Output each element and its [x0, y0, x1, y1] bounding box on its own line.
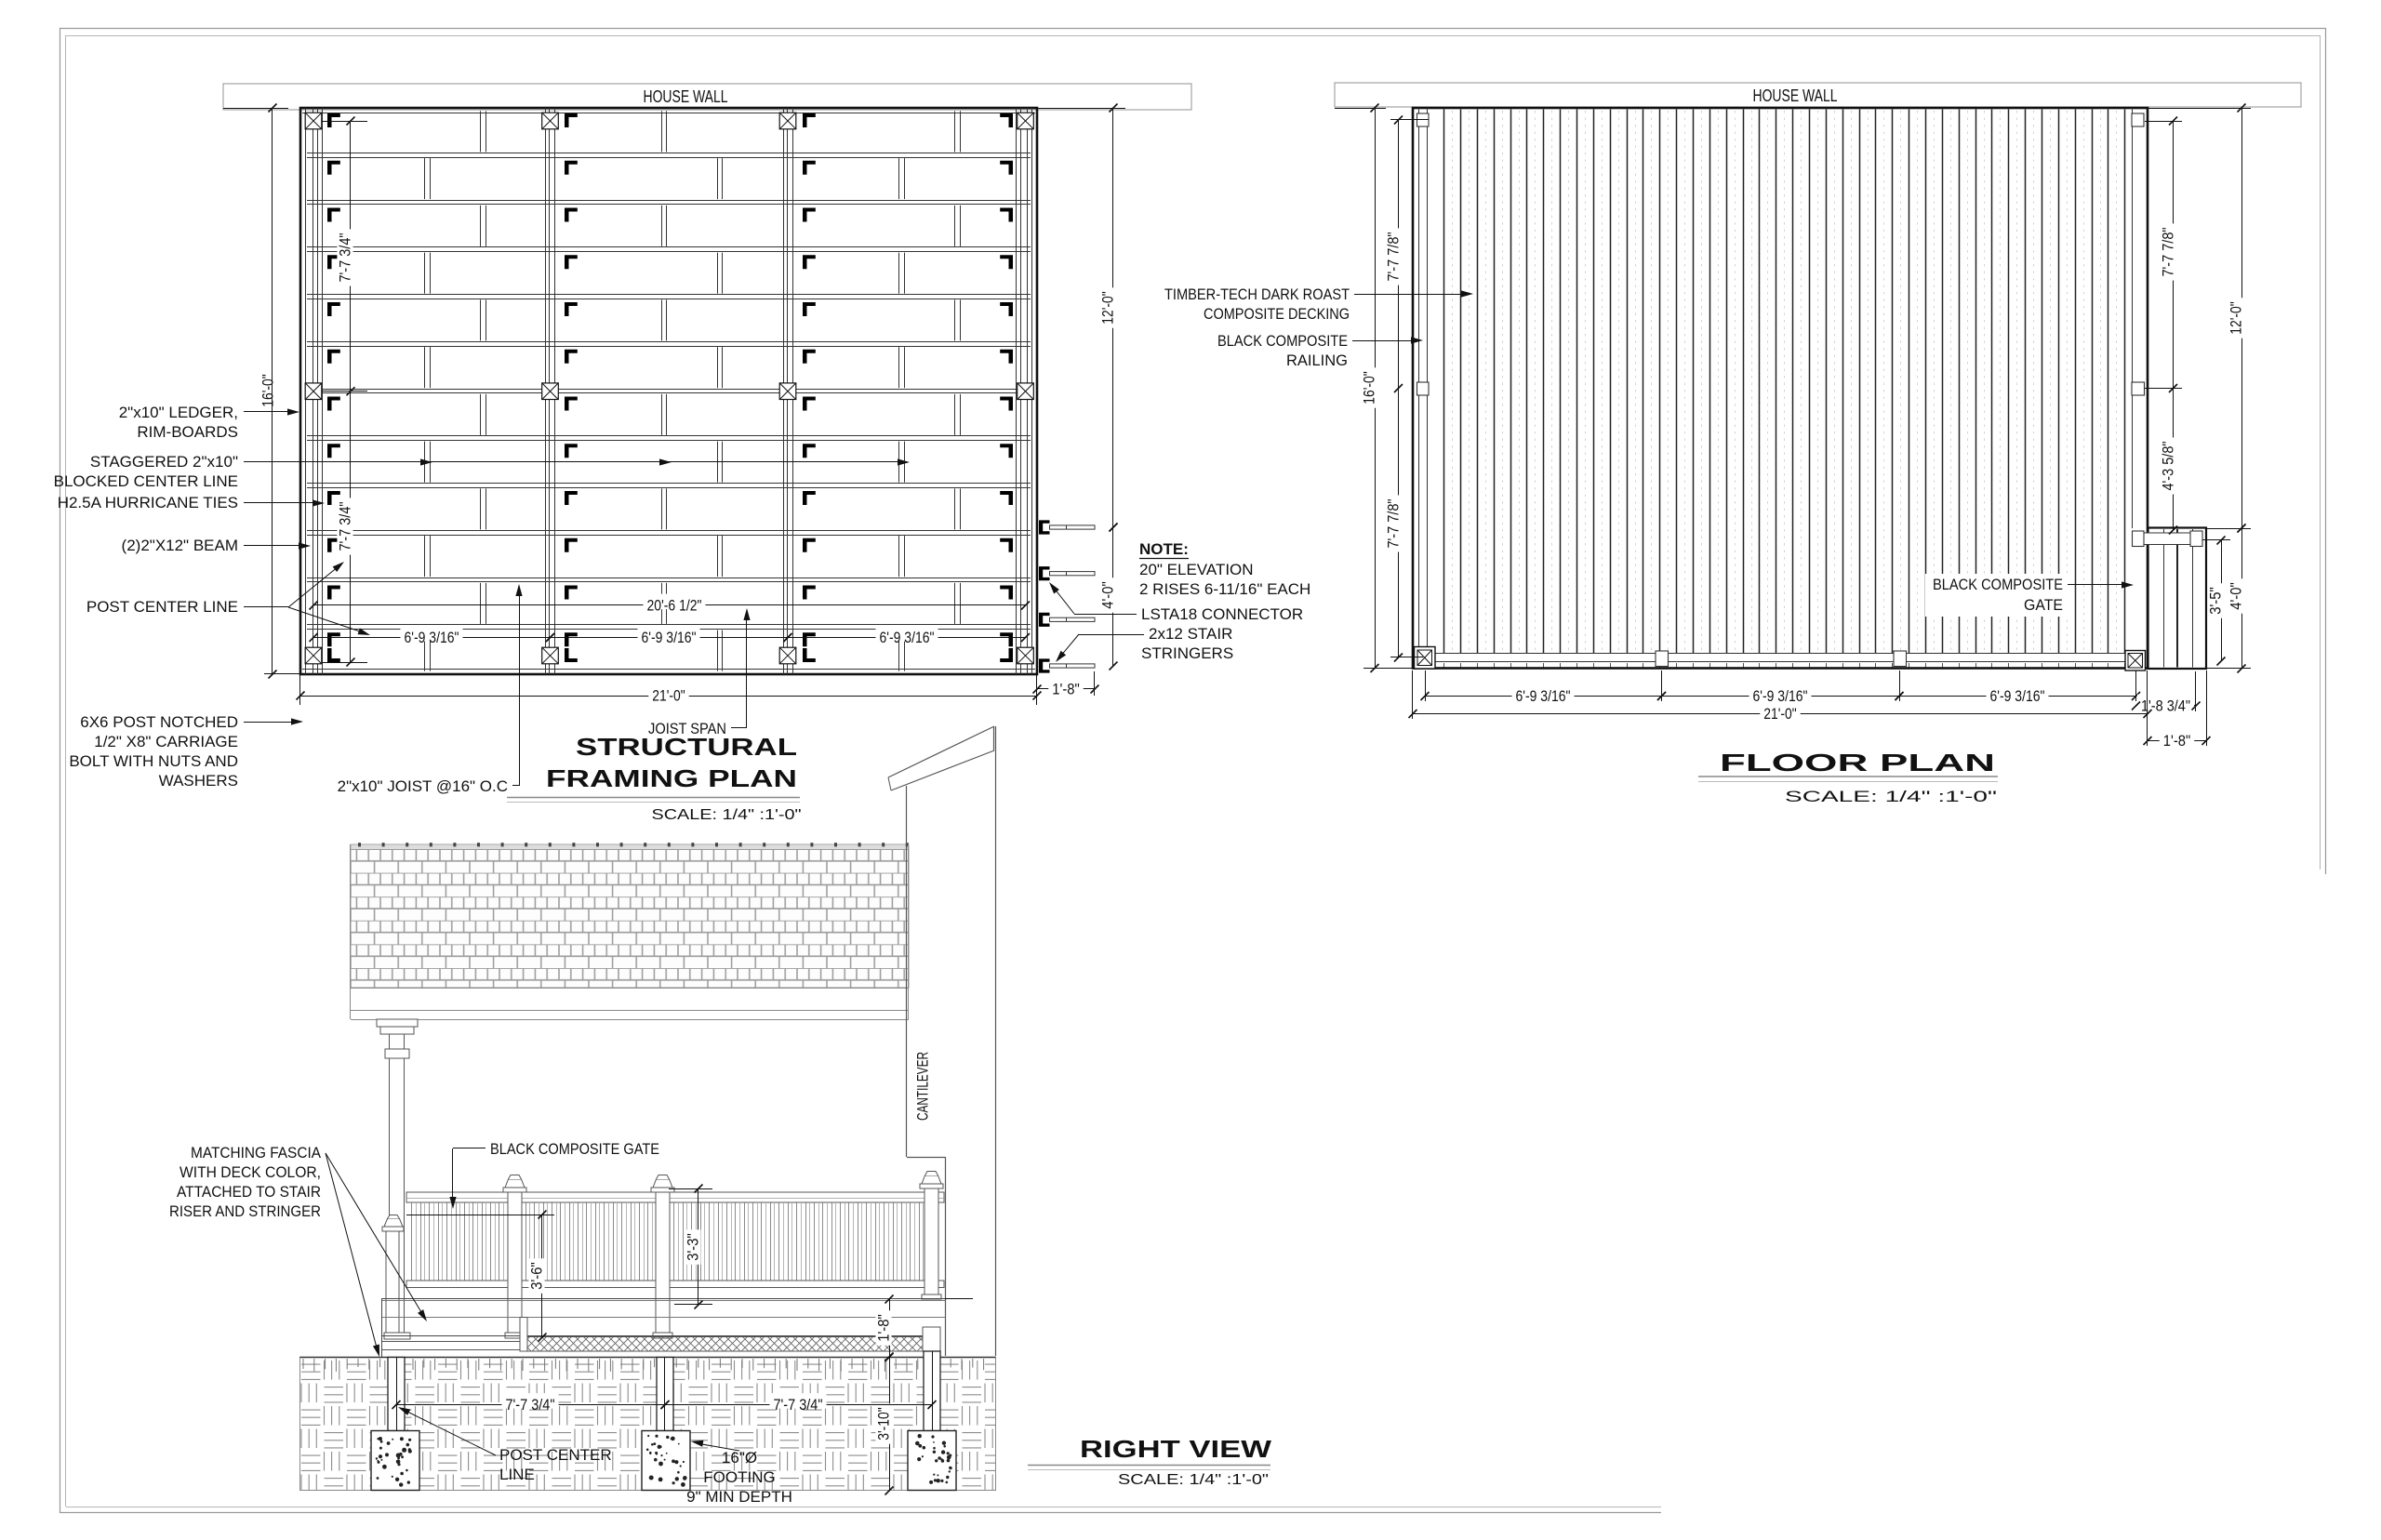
- svg-text:RIGHT VIEW: RIGHT VIEW: [1080, 1435, 1272, 1463]
- svg-text:RIM-BOARDS: RIM-BOARDS: [137, 423, 238, 441]
- svg-text:BLOCKED CENTER LINE: BLOCKED CENTER LINE: [54, 472, 238, 490]
- svg-text:ATTACHED TO STAIR: ATTACHED TO STAIR: [177, 1183, 321, 1201]
- svg-text:SCALE: 1/4" :1'-0": SCALE: 1/4" :1'-0": [652, 807, 802, 823]
- svg-text:FOOTING: FOOTING: [703, 1468, 775, 1486]
- svg-text:LSTA18 CONNECTOR: LSTA18 CONNECTOR: [1141, 605, 1303, 623]
- svg-text:BLACK COMPOSITE: BLACK COMPOSITE: [1933, 576, 2063, 593]
- svg-text:COMPOSITE DECKING: COMPOSITE DECKING: [1204, 305, 1350, 323]
- svg-text:H2.5A HURRICANE TIES: H2.5A HURRICANE TIES: [58, 494, 238, 511]
- svg-text:1'-8": 1'-8": [1052, 681, 1080, 697]
- svg-text:16'-0": 16'-0": [1361, 371, 1377, 405]
- svg-text:3'-10": 3'-10": [875, 1407, 892, 1440]
- svg-text:STAGGERED 2"x10": STAGGERED 2"x10": [90, 453, 238, 471]
- svg-text:SCALE: 1/4" :1'-0": SCALE: 1/4" :1'-0": [1785, 789, 1997, 805]
- svg-text:7'-7 3/4": 7'-7 3/4": [773, 1397, 822, 1414]
- svg-text:20" ELEVATION: 20" ELEVATION: [1139, 561, 1254, 578]
- svg-text:6'-9 3/16": 6'-9 3/16": [405, 630, 459, 646]
- svg-text:POST CENTER: POST CENTER: [499, 1446, 612, 1464]
- svg-text:HOUSE WALL: HOUSE WALL: [644, 87, 728, 106]
- svg-text:BOLT WITH NUTS AND: BOLT WITH NUTS AND: [69, 752, 238, 770]
- svg-text:21'-0": 21'-0": [652, 687, 685, 704]
- svg-text:7'-7 3/4": 7'-7 3/4": [505, 1397, 554, 1414]
- svg-text:2x12 STAIR: 2x12 STAIR: [1149, 625, 1232, 643]
- svg-text:7'-7 7/8": 7'-7 7/8": [1385, 232, 1402, 281]
- svg-text:1/2" X8" CARRIAGE: 1/2" X8" CARRIAGE: [94, 733, 238, 750]
- svg-text:MATCHING FASCIA: MATCHING FASCIA: [191, 1144, 322, 1162]
- svg-text:3'-3": 3'-3": [685, 1233, 701, 1261]
- svg-text:2"x10" LEDGER,: 2"x10" LEDGER,: [119, 404, 238, 421]
- svg-text:1'-8": 1'-8": [875, 1314, 892, 1342]
- svg-text:16"Ø: 16"Ø: [722, 1449, 757, 1467]
- svg-text:7'-7 3/4": 7'-7 3/4": [337, 501, 353, 551]
- svg-text:NOTE:: NOTE:: [1139, 540, 1189, 558]
- svg-text:POST CENTER LINE: POST CENTER LINE: [86, 598, 238, 616]
- svg-text:2"x10" JOIST @16" O.C: 2"x10" JOIST @16" O.C: [338, 777, 508, 795]
- svg-text:2 RISES 6-11/16" EACH: 2 RISES 6-11/16" EACH: [1139, 580, 1310, 598]
- svg-text:(2)2"X12" BEAM: (2)2"X12" BEAM: [122, 537, 238, 554]
- svg-text:SCALE: 1/4" :1'-0": SCALE: 1/4" :1'-0": [1118, 1472, 1269, 1488]
- svg-text:BLACK COMPOSITE: BLACK COMPOSITE: [1217, 332, 1348, 350]
- svg-text:4'-0": 4'-0": [2228, 582, 2244, 610]
- svg-text:4'-0": 4'-0": [1099, 581, 1116, 609]
- svg-text:9" MIN DEPTH: 9" MIN DEPTH: [686, 1488, 792, 1506]
- svg-text:20'-6 1/2": 20'-6 1/2": [647, 597, 702, 614]
- svg-text:3'-6": 3'-6": [528, 1262, 545, 1290]
- svg-text:WITH DECK COLOR,: WITH DECK COLOR,: [180, 1163, 321, 1181]
- svg-text:LINE: LINE: [499, 1466, 535, 1483]
- svg-text:TIMBER-TECH DARK ROAST: TIMBER-TECH DARK ROAST: [1164, 285, 1350, 303]
- svg-text:7'-7 7/8": 7'-7 7/8": [1385, 498, 1402, 548]
- svg-text:BLACK COMPOSITE GATE: BLACK COMPOSITE GATE: [490, 1140, 659, 1158]
- svg-text:1'-8": 1'-8": [2163, 733, 2191, 750]
- svg-text:3'-5": 3'-5": [2207, 587, 2224, 615]
- svg-text:6'-9 3/16": 6'-9 3/16": [880, 630, 935, 646]
- svg-text:6'-9 3/16": 6'-9 3/16": [1516, 688, 1571, 705]
- svg-text:HOUSE WALL: HOUSE WALL: [1753, 86, 1838, 105]
- svg-text:4'-3 5/8": 4'-3 5/8": [2160, 441, 2176, 490]
- svg-text:STRINGERS: STRINGERS: [1141, 644, 1233, 662]
- svg-text:12'-0": 12'-0": [2228, 301, 2244, 335]
- svg-text:FLOOR PLAN: FLOOR PLAN: [1720, 749, 1995, 777]
- svg-text:6'-9 3/16": 6'-9 3/16": [642, 630, 697, 646]
- svg-text:6'-9 3/16": 6'-9 3/16": [1990, 688, 2045, 705]
- svg-text:WASHERS: WASHERS: [159, 772, 238, 790]
- svg-text:STRUCTURAL: STRUCTURAL: [576, 733, 797, 761]
- svg-text:7'-7 3/4": 7'-7 3/4": [337, 232, 353, 282]
- svg-text:RISER AND STRINGER: RISER AND STRINGER: [169, 1202, 321, 1220]
- svg-text:GATE: GATE: [2024, 596, 2063, 614]
- svg-text:12'-0": 12'-0": [1099, 291, 1116, 325]
- svg-text:6X6 POST NOTCHED: 6X6 POST NOTCHED: [80, 713, 238, 731]
- svg-text:FRAMING PLAN: FRAMING PLAN: [546, 764, 797, 792]
- svg-text:7'-7 7/8": 7'-7 7/8": [2160, 227, 2176, 276]
- svg-text:6'-9 3/16": 6'-9 3/16": [1753, 688, 1808, 705]
- svg-text:16'-0": 16'-0": [259, 374, 276, 407]
- svg-text:CANTILEVER: CANTILEVER: [914, 1052, 932, 1121]
- svg-text:RAILING: RAILING: [1286, 352, 1348, 369]
- svg-text:21'-0": 21'-0": [1763, 706, 1797, 723]
